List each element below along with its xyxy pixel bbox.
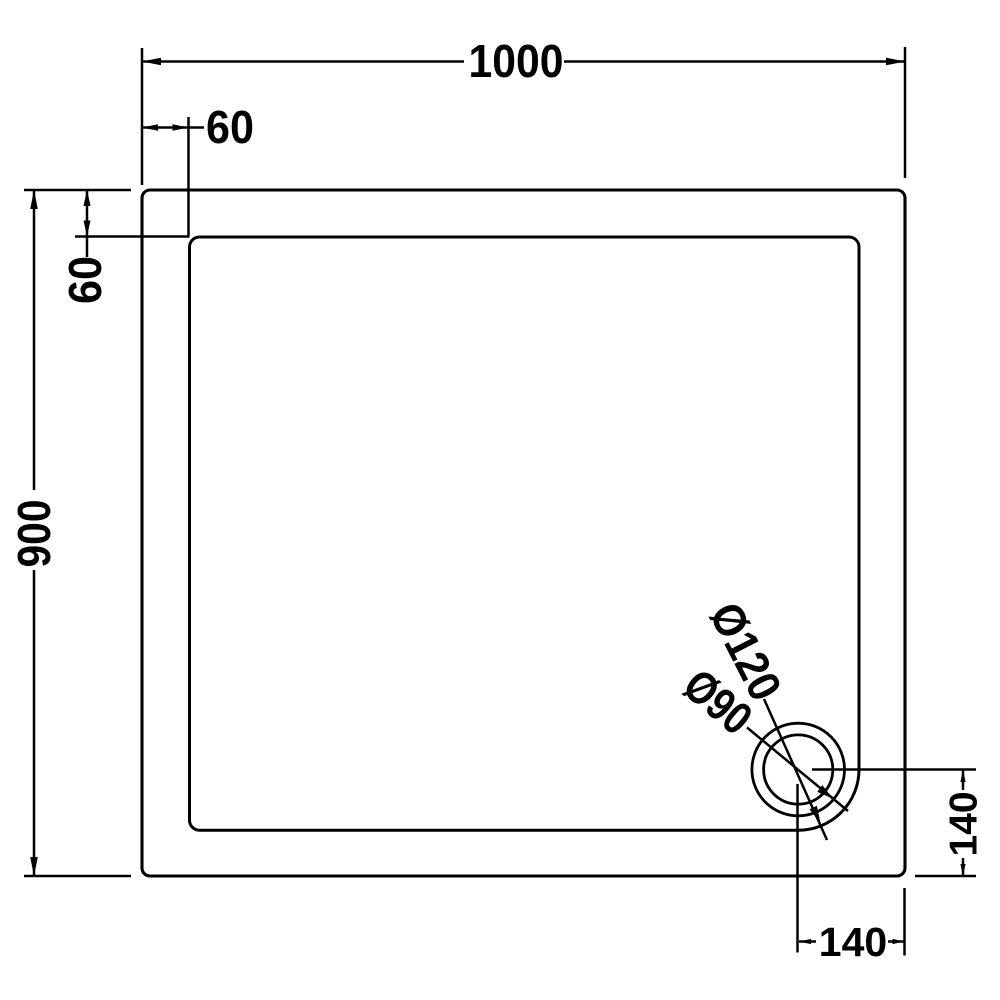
svg-text:900: 900 bbox=[8, 500, 60, 568]
svg-text:60: 60 bbox=[206, 101, 254, 153]
svg-text:60: 60 bbox=[59, 256, 111, 304]
svg-text:140: 140 bbox=[943, 791, 986, 856]
svg-text:1000: 1000 bbox=[469, 35, 564, 87]
svg-text:140: 140 bbox=[819, 919, 887, 965]
